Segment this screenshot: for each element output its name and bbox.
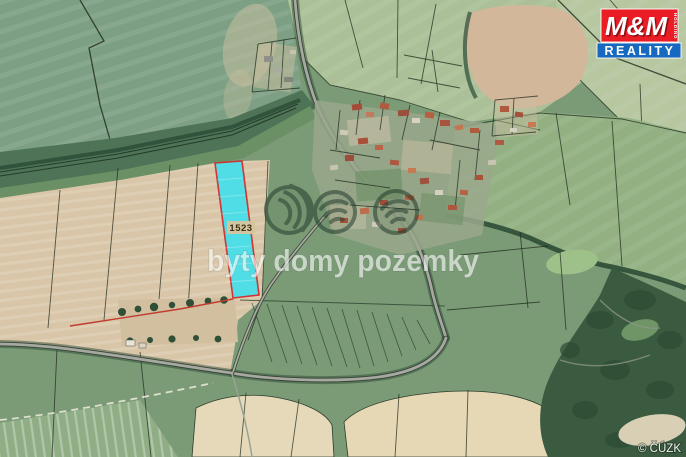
map-image[interactable]: 1523 byty domy pozemky M&M M&M HOLDING R… — [0, 0, 686, 457]
parcel-number-label: 1523 — [229, 223, 252, 234]
hamlet-northeast — [492, 96, 538, 138]
hedged-strips — [118, 296, 238, 348]
mm-reality-logo: M&M M&M HOLDING REALITY — [597, 9, 681, 58]
logo-reality-text: REALITY — [605, 44, 676, 58]
satellite-cadastral-map[interactable]: 1523 byty domy pozemky M&M M&M HOLDING R… — [0, 0, 686, 457]
watermark-text: byty domy pozemky — [207, 243, 480, 278]
logo-mm-text: M&M — [605, 11, 668, 41]
logo-holding-text: HOLDING — [673, 13, 678, 39]
map-attribution: © ČÚZK — [638, 442, 681, 455]
